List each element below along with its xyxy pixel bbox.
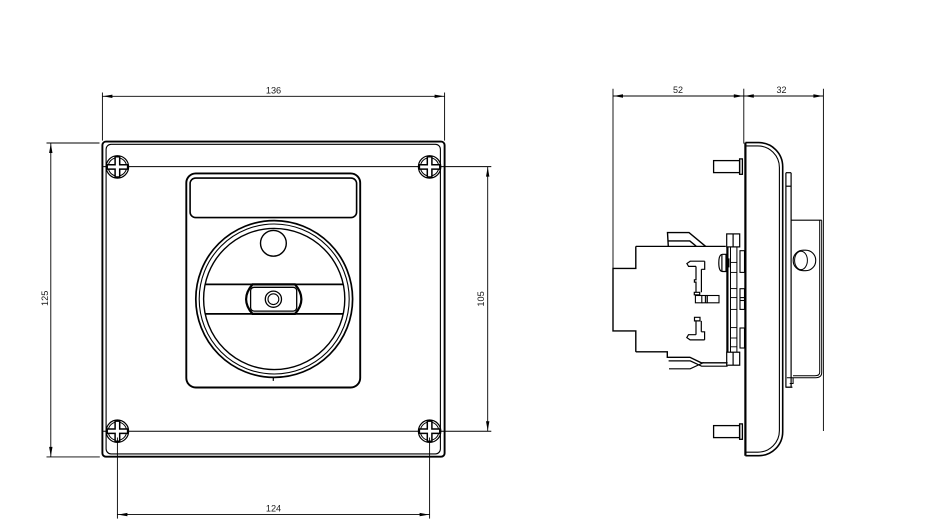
svg-text:105: 105 xyxy=(476,291,486,306)
svg-text:124: 124 xyxy=(266,503,281,513)
svg-text:32: 32 xyxy=(776,85,786,95)
svg-text:52: 52 xyxy=(673,85,683,95)
svg-text:136: 136 xyxy=(266,85,281,95)
svg-text:125: 125 xyxy=(40,291,50,306)
